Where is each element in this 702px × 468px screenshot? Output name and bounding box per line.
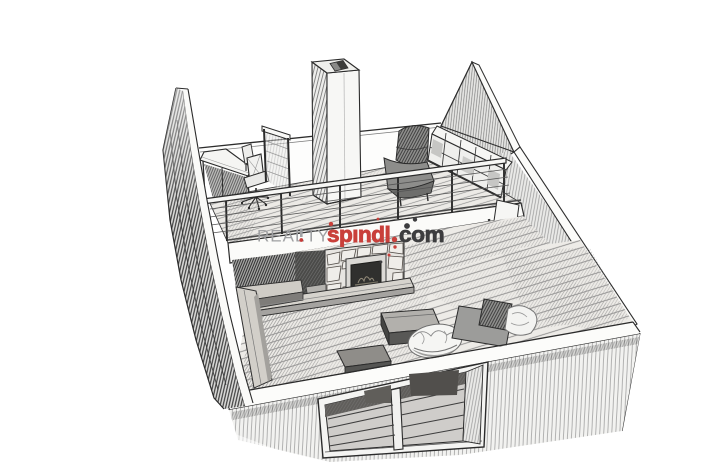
svg-text:REAL: REAL xyxy=(257,227,305,246)
svg-text:spındl: spındl xyxy=(327,222,390,247)
